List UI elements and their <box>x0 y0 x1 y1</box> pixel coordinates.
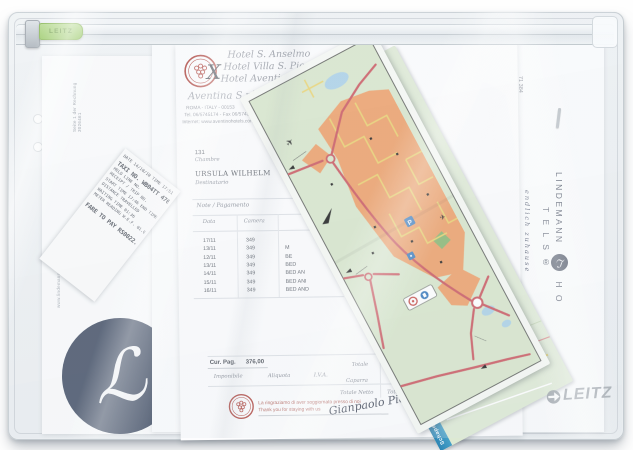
totale-label: Totale <box>352 362 369 368</box>
leitz-arrow-icon <box>546 388 562 404</box>
total-value: 376,00 <box>246 359 264 365</box>
thanks-english: Thank you for staying with us <box>258 407 320 413</box>
tax-label-imponibile: Imponibile <box>214 373 243 379</box>
hotel-city-line: ROMA - ITALY - 00153 <box>186 106 235 112</box>
lindemann-brand-column: LINDEMANN ℒ H O T E L S ® <box>541 168 568 308</box>
room-label: Chambre <box>195 157 220 163</box>
rule <box>208 367 268 369</box>
totale-netto-label: Totale Netto <box>340 390 373 396</box>
brand-tagline: endlich zuhause <box>523 190 531 300</box>
rule <box>194 296 344 299</box>
hotel-stamp-icon <box>228 393 254 419</box>
zipper-slider <box>25 20 40 48</box>
airplane-icon: ✈ <box>439 214 446 222</box>
lindemann-logo-icon: ℒ <box>551 254 568 271</box>
guest-label: Destinatario <box>195 180 228 186</box>
brand-name: LINDEMANN <box>554 172 564 245</box>
monogram-letter: ℒ <box>90 332 150 421</box>
table-section-header: Note / Pagamento <box>196 202 249 209</box>
hotel-tel-line: Tel. 06/5745174 - Fax 06/5743547 <box>184 112 257 118</box>
product-photo: Seite 1 der Rechnung 3026461 +49 (0)30 5… <box>0 0 633 450</box>
leitz-wordmark: LEITZ <box>563 384 613 405</box>
guest-name: URSULA WILHELM <box>195 169 271 178</box>
zipper-end-cap <box>592 16 618 48</box>
room-number: 131 <box>195 150 205 156</box>
rule <box>258 413 388 416</box>
invoice-page-footer-text: Seite 1 der Rechnung 3026461 <box>72 72 82 132</box>
zipper-rail <box>16 24 614 45</box>
leitz-logo: LEITZ <box>546 384 613 405</box>
tax-label-aliquota: Aliquota <box>268 373 291 379</box>
tax-label-iva: I.V.A. <box>314 372 328 378</box>
column-header-date: Data <box>203 219 216 225</box>
caparra-label: Caparra <box>346 378 368 384</box>
total-label: Cur. Pag. <box>210 360 236 366</box>
staple <box>556 108 561 128</box>
hotel-web-line: Internet: www.aventinohotels.com <box>182 119 254 125</box>
zipper-pull-tab: LEITZ <box>39 23 83 40</box>
handwritten-x-mark: X <box>206 60 221 84</box>
column-header-room: Camera <box>244 218 265 224</box>
hotel-name-1: Hotel S. Anselmo <box>227 49 310 61</box>
